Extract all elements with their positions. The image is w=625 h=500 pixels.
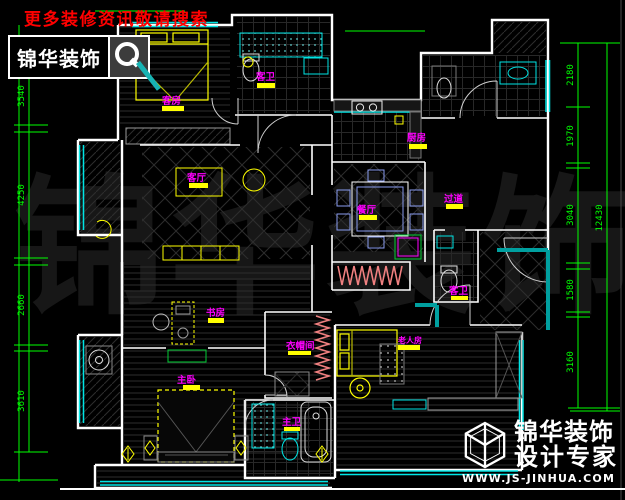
brand-logo-text: 锦华装饰 xyxy=(10,37,108,77)
brand-logo-box: 锦华装饰 xyxy=(8,35,150,79)
top-right-balcony-floor xyxy=(494,22,546,53)
dim-right-2: 3040 xyxy=(566,204,576,226)
shower-area xyxy=(240,33,322,57)
living-room-floor xyxy=(142,147,310,259)
dim-right-total: 12430 xyxy=(595,204,605,231)
dim-left-2: 2660 xyxy=(17,294,27,316)
dim-left-1: 4250 xyxy=(17,184,27,206)
footer-brand-text: 锦华装饰 xyxy=(514,420,618,445)
dim-left-3: 3610 xyxy=(17,390,27,412)
dim-right-4: 3160 xyxy=(566,351,576,373)
floorplan-screenshot: 锦华装饰 xyxy=(0,0,625,500)
room-label-guest-bath-mid: 客卫 xyxy=(448,285,469,297)
entry-floor xyxy=(480,232,546,330)
room-label-study: 书房 xyxy=(206,307,225,319)
room-label-closet: 衣帽间 xyxy=(286,340,315,352)
top-right-room-floor xyxy=(423,55,546,116)
room-label-master-bath: 主卫 xyxy=(282,416,302,428)
room-label-guest-bedroom: 客房 xyxy=(161,95,181,107)
dim-right-0: 2180 xyxy=(566,64,576,86)
shower-mat xyxy=(252,404,274,448)
room-label-kitchen: 厨房 xyxy=(407,132,426,144)
footer-tagline-text: 设计专家 xyxy=(514,445,618,470)
room-label-living: 客厅 xyxy=(186,172,207,184)
left-balcony-floor xyxy=(80,142,120,233)
footer-branding: 锦华装饰 设计专家 WWW.JS-JINHUA.COM xyxy=(462,420,625,485)
dim-right-1: 1970 xyxy=(566,125,576,147)
room-label-master-bedroom: 主卧 xyxy=(177,374,197,386)
master-bed-icon xyxy=(144,390,248,462)
guest-bedroom-wardrobe xyxy=(126,128,230,144)
magnifier-panel xyxy=(108,37,148,77)
dim-right-3: 1580 xyxy=(566,279,576,301)
room-label-dining: 餐厅 xyxy=(356,204,377,216)
dim-left-0: 3540 xyxy=(17,85,27,107)
room-label-guest-bath-top: 客卫 xyxy=(255,71,276,83)
bottom-rule xyxy=(60,488,625,490)
room-label-hallway: 过道 xyxy=(444,193,464,205)
dining-floor xyxy=(334,164,423,252)
footer-url-text: WWW.JS-JINHUA.COM xyxy=(462,472,625,485)
cube-logo-icon xyxy=(462,420,508,470)
closet-rug xyxy=(275,372,309,396)
guest-bath-floor xyxy=(237,17,330,113)
search-notice-text: 更多装修资讯敬请搜索 xyxy=(24,5,209,30)
room-label-elder-room: 老人房 xyxy=(397,335,422,345)
